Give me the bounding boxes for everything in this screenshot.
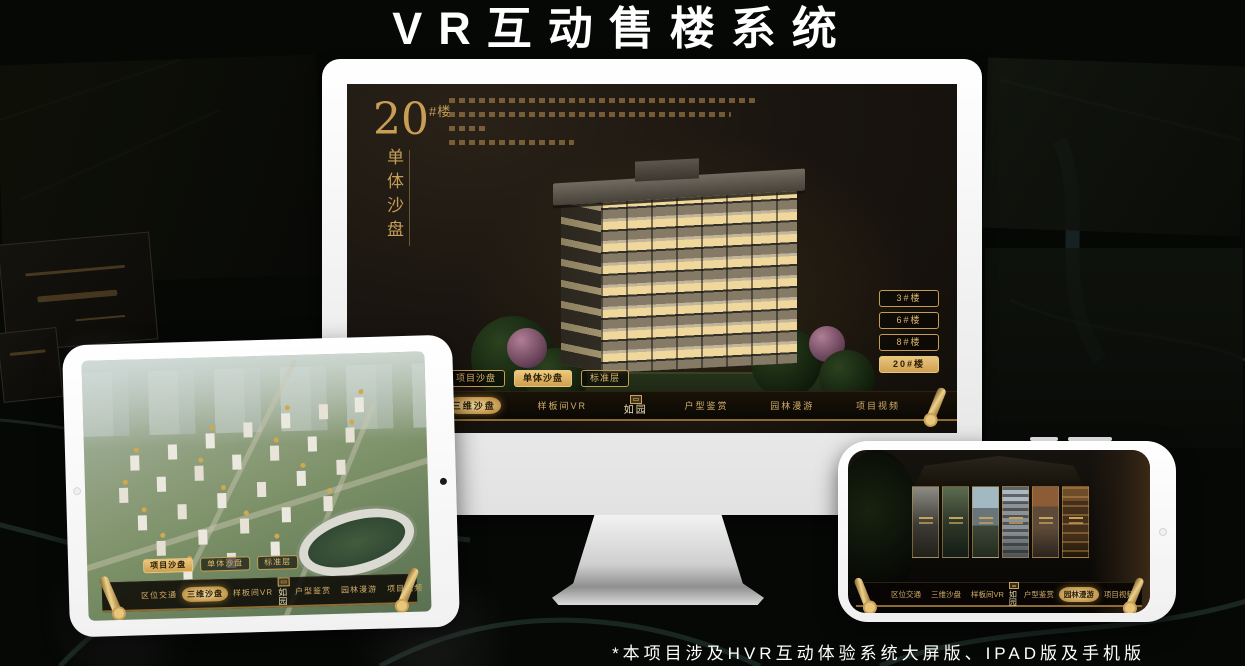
subtab-single-sandbox[interactable]: 单体沙盘 <box>200 556 250 571</box>
brand-seal-icon <box>278 577 290 586</box>
nav-item-3d-sandbox[interactable]: 三维沙盘 <box>182 586 228 602</box>
building-penthouse <box>635 158 699 181</box>
nav-item-floorplan[interactable]: 户型鉴赏 <box>290 583 336 599</box>
tablet-home-button[interactable] <box>440 478 447 485</box>
subtab-project-sandbox[interactable]: 项目沙盘 <box>447 370 505 387</box>
nav-item-showroom-vr[interactable]: 样板间VR <box>228 585 279 601</box>
brand-logo-text: 如园 <box>624 406 648 416</box>
phone-side-button[interactable] <box>1068 437 1112 441</box>
floor-button[interactable]: 8#楼 <box>879 334 939 351</box>
nav-item-garden-roam[interactable]: 园林漫游 <box>765 397 819 414</box>
phone-camera-icon <box>1159 528 1167 536</box>
tablet-navbar: 区位交通 三维沙盘 样板间VR 如园 户型鉴赏 园林漫游 项目视频 <box>102 574 418 613</box>
scene-card[interactable] <box>1062 486 1089 558</box>
building-side-face <box>561 196 601 373</box>
subtab-project-sandbox[interactable]: 项目沙盘 <box>143 558 193 573</box>
brand-logo[interactable]: 如园 <box>1009 582 1019 607</box>
scene-card[interactable] <box>912 486 939 558</box>
tablet-subtabs: 项目沙盘 单体沙盘 标准层 <box>143 555 298 573</box>
scroll-icon[interactable] <box>853 577 872 610</box>
phone-screen: 区位交通 三维沙盘 样板间VR 如园 户型鉴赏 园林漫游 项目视频 <box>848 450 1150 613</box>
background-panel <box>985 248 1243 448</box>
nav-item-project-video[interactable]: 项目视频 <box>851 397 905 414</box>
nav-item-garden-roam[interactable]: 园林漫游 <box>336 582 382 598</box>
building-subtitle: 单体沙盘 <box>381 148 406 244</box>
brand-logo[interactable]: 如园 <box>624 395 648 416</box>
nav-item-showroom-vr[interactable]: 样板间VR <box>533 397 593 414</box>
scene-card[interactable] <box>972 486 999 558</box>
scene-card-gallery <box>912 486 1089 558</box>
floor-button-active[interactable]: 20#楼 <box>879 356 939 373</box>
building-front-face <box>601 187 797 373</box>
page-title: VR互动售楼系统 <box>0 0 1245 58</box>
gate-silhouette <box>914 456 1083 486</box>
background-panel <box>982 58 1245 237</box>
brand-logo-text: 如园 <box>278 588 290 606</box>
blossom-tree <box>507 328 547 368</box>
phone-side-button[interactable] <box>1030 437 1058 441</box>
building-number-suffix: #楼 <box>429 104 451 119</box>
brand-seal-icon <box>630 395 642 404</box>
brand-logo-text: 如园 <box>1009 591 1019 607</box>
floor-button[interactable]: 6#楼 <box>879 312 939 329</box>
scroll-icon[interactable] <box>926 387 947 422</box>
scene-card[interactable] <box>1002 486 1029 558</box>
subtab-standard-floor[interactable]: 标准层 <box>581 370 629 387</box>
building-headline: 20#楼 单体沙盘 <box>373 98 451 244</box>
nav-item-location[interactable]: 区位交通 <box>136 587 182 603</box>
poster-canvas: VR互动售楼系统 20#楼 单体沙盘 <box>0 0 1245 666</box>
scene-card[interactable] <box>942 486 969 558</box>
phone-navbar: 区位交通 三维沙盘 样板间VR 如园 户型鉴赏 园林漫游 项目视频 <box>856 582 1142 607</box>
building-number-markers[interactable] <box>81 361 86 366</box>
nav-item-3d-sandbox[interactable]: 三维沙盘 <box>926 587 966 602</box>
scroll-icon[interactable] <box>98 575 122 615</box>
tablet-camera-icon <box>73 487 81 495</box>
subtab-single-sandbox[interactable]: 单体沙盘 <box>514 370 572 387</box>
nav-item-showroom-vr[interactable]: 样板间VR <box>966 587 1009 602</box>
building-number: 20 <box>373 94 429 145</box>
nav-item-garden-roam[interactable]: 园林漫游 <box>1059 587 1099 602</box>
headline-rule <box>409 150 410 246</box>
tablet-device: 项目沙盘 单体沙盘 标准层 区位交通 三维沙盘 样板间VR 如园 户型鉴赏 园林… <box>62 335 460 638</box>
nav-item-floorplan[interactable]: 户型鉴赏 <box>1019 587 1059 602</box>
floor-button[interactable]: 3#楼 <box>879 290 939 307</box>
nav-item-location[interactable]: 区位交通 <box>886 587 926 602</box>
monitor-subtabs: 项目沙盘 单体沙盘 标准层 <box>447 370 629 387</box>
scene-card[interactable] <box>1032 486 1059 558</box>
nav-item-floorplan[interactable]: 户型鉴赏 <box>679 397 733 414</box>
text-line <box>449 98 755 103</box>
floor-selector: 3#楼 6#楼 8#楼 20#楼 <box>879 290 939 373</box>
brand-seal-icon <box>1009 582 1019 589</box>
nav-item-3d-sandbox[interactable]: 三维沙盘 <box>447 397 501 414</box>
brand-logo[interactable]: 如园 <box>278 577 291 606</box>
phone-device: 区位交通 三维沙盘 样板间VR 如园 户型鉴赏 园林漫游 项目视频 <box>838 441 1176 622</box>
tablet-screen: 项目沙盘 单体沙盘 标准层 区位交通 三维沙盘 样板间VR 如园 户型鉴赏 园林… <box>81 351 431 620</box>
text-line <box>449 112 731 117</box>
footnote: *本项目涉及HVR互动体验系统大屏版、IPAD版及手机版 <box>612 639 1145 664</box>
subtab-standard-floor[interactable]: 标准层 <box>257 555 298 570</box>
